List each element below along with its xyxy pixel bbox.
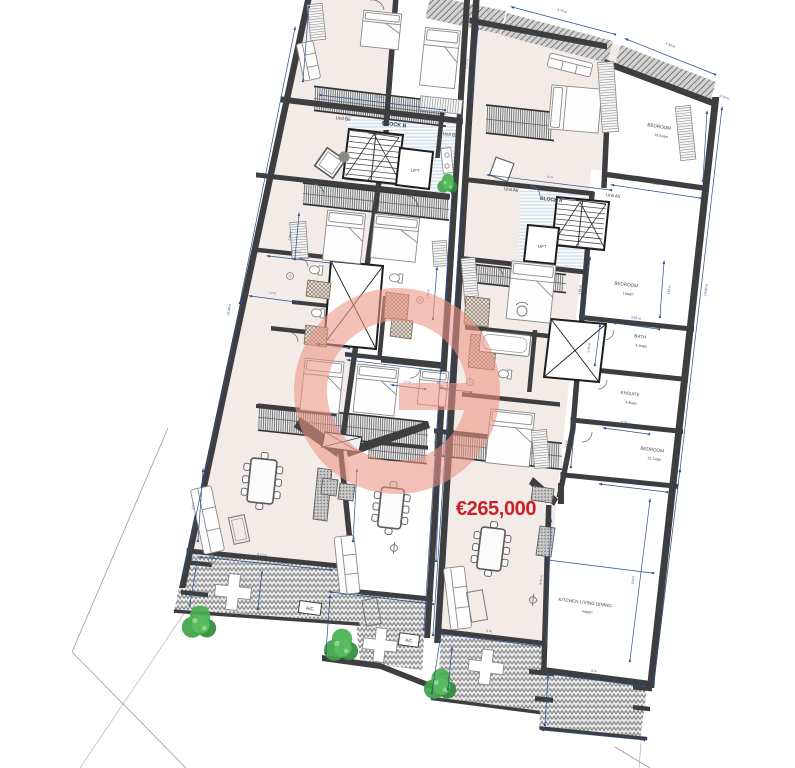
svg-text:A/C: A/C — [405, 638, 413, 644]
svg-text:7.7 m: 7.7 m — [429, 511, 434, 519]
svg-text:LIFT: LIFT — [411, 168, 421, 174]
svg-text:€265,000: €265,000 — [456, 498, 536, 520]
svg-text:5 m: 5 m — [591, 669, 597, 674]
svg-text:5 m: 5 m — [547, 175, 553, 180]
svg-text:4.9 m: 4.9 m — [191, 501, 196, 509]
svg-text:7.7 m: 7.7 m — [346, 501, 351, 509]
svg-text:3.5 m: 3.5 m — [564, 439, 569, 447]
svg-text:5 m: 5 m — [653, 182, 659, 187]
svg-text:LIFT: LIFT — [538, 244, 548, 250]
svg-text:5 m: 5 m — [486, 629, 492, 634]
